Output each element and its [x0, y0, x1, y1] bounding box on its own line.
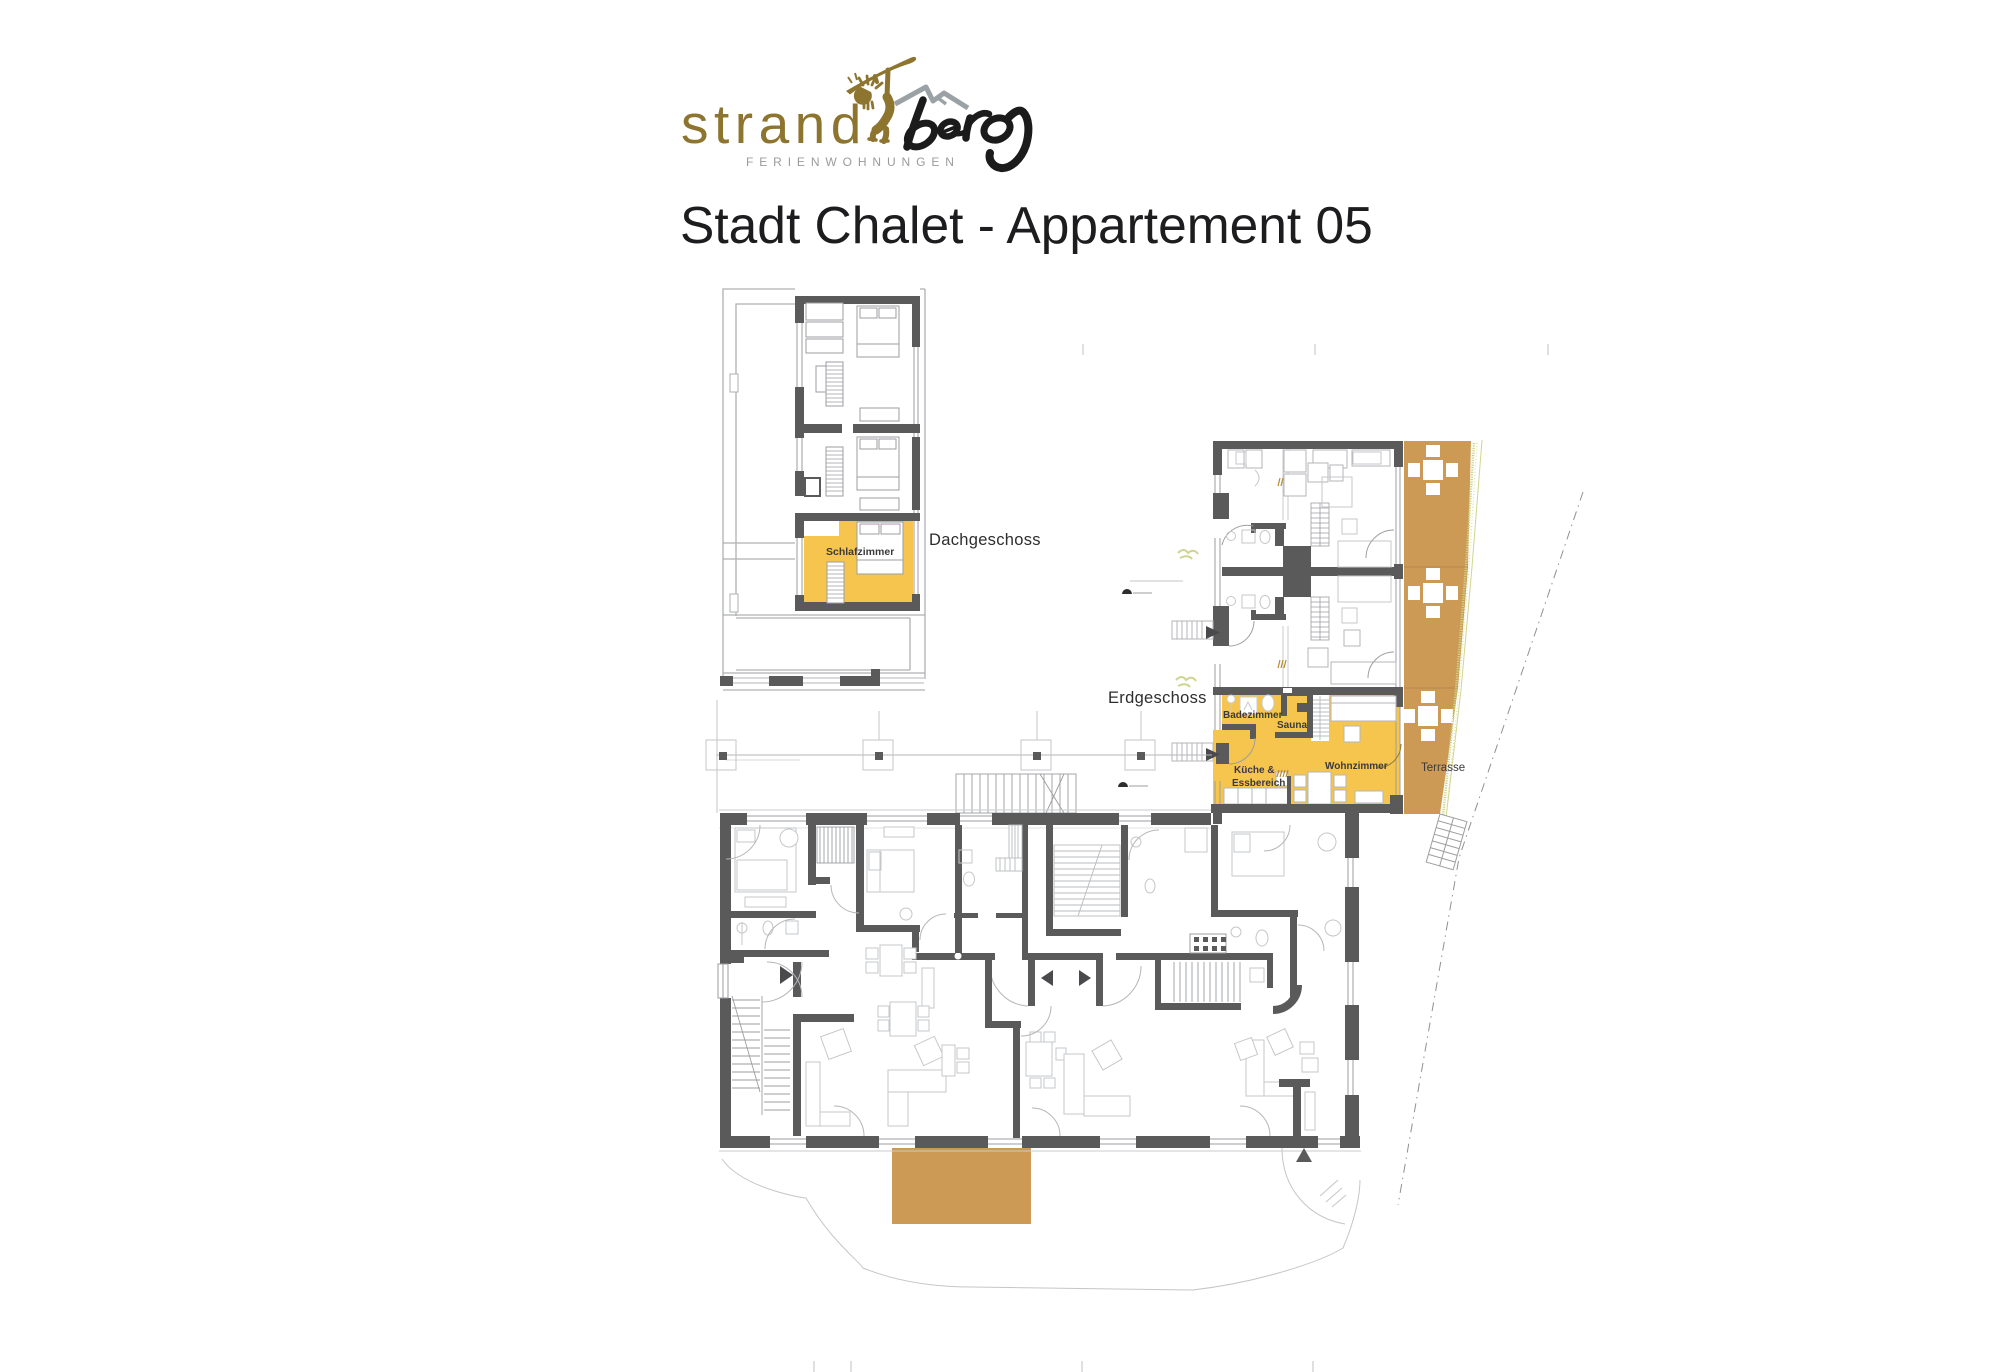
- svg-text:Badezimmer: Badezimmer: [1223, 710, 1283, 721]
- svg-text:Terrasse: Terrasse: [1421, 762, 1465, 774]
- svg-text:Wohnzimmer: Wohnzimmer: [1325, 761, 1388, 772]
- svg-text:Küche &: Küche &: [1234, 765, 1275, 776]
- svg-text:Sauna: Sauna: [1277, 720, 1307, 731]
- svg-text:Essbereich: Essbereich: [1232, 778, 1285, 789]
- svg-text:Erdgeschoss: Erdgeschoss: [1108, 689, 1207, 707]
- svg-text:Stadt Chalet - Appartement 05: Stadt Chalet - Appartement 05: [680, 196, 1373, 254]
- svg-text:Schlafzimmer: Schlafzimmer: [826, 546, 894, 558]
- svg-text:Dachgeschoss: Dachgeschoss: [929, 531, 1041, 549]
- svg-text:strand: strand: [681, 93, 867, 155]
- svg-text:FERIENWOHNUNGEN: FERIENWOHNUNGEN: [746, 155, 960, 169]
